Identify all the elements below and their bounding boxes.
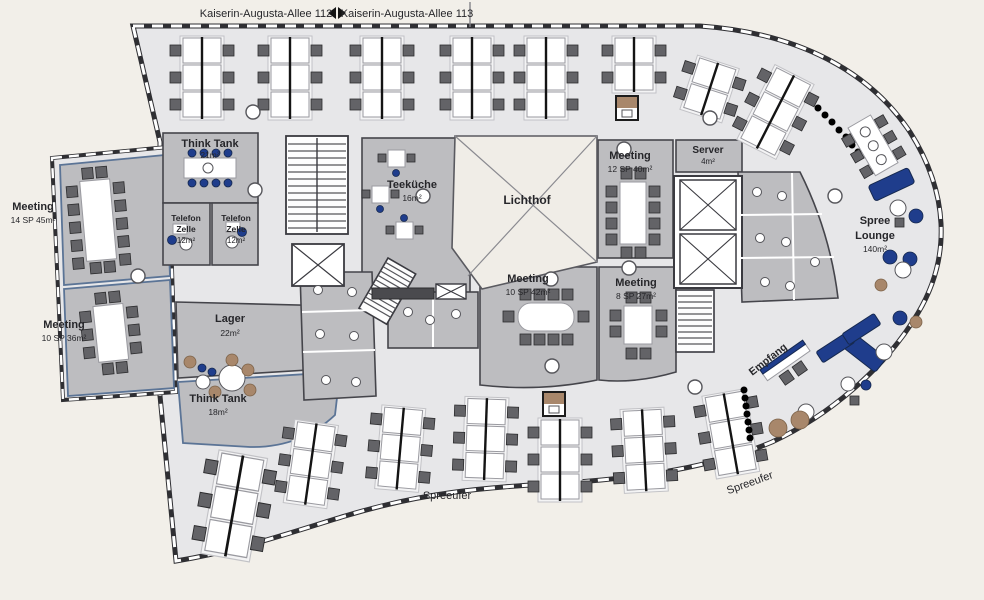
lounge-pouf-4 bbox=[791, 411, 809, 429]
label-meeting-left-bottom: Meeting bbox=[43, 319, 85, 331]
street-label-kaiserin-113: Kaiserin-Augusta-Allee 113 bbox=[341, 8, 473, 20]
label-meeting-center-left: Meeting bbox=[507, 273, 549, 285]
lounge-armchair-1 bbox=[909, 209, 923, 223]
label-telefon-right-area: 12m² bbox=[227, 236, 246, 245]
label-lichthof: Lichthof bbox=[503, 193, 551, 207]
label-meeting-center-top: Meeting bbox=[609, 150, 651, 162]
street-label-spreeufer-center: Spreeufer bbox=[423, 490, 472, 502]
lounge-table-1 bbox=[890, 200, 906, 216]
elevator-center bbox=[292, 244, 344, 286]
label-meeting-center-right-area: 8 SP 27m² bbox=[616, 291, 656, 301]
label-telefon-right-2: Zelle bbox=[226, 224, 246, 234]
label-telefon-left-area: 12m² bbox=[177, 236, 196, 245]
label-meeting-left-top: Meeting bbox=[12, 201, 54, 213]
elevator-right-shaft bbox=[674, 176, 742, 288]
label-teekueche: Teeküche bbox=[387, 179, 437, 191]
label-spree-lounge-area: 140m² bbox=[863, 244, 887, 254]
lounge-pouf-2 bbox=[910, 316, 922, 328]
room-wc-center bbox=[300, 272, 376, 400]
lounge-pouf-1 bbox=[875, 279, 887, 291]
stairwell-right bbox=[676, 290, 714, 352]
lounge-table-3 bbox=[876, 344, 892, 360]
floor-plan: Kaiserin-Augusta-Allee 112 Kaiserin-Augu… bbox=[0, 0, 984, 600]
label-meeting-center-right: Meeting bbox=[615, 277, 657, 289]
label-server: Server bbox=[692, 145, 723, 156]
label-telefon-left-1: Telefon bbox=[171, 213, 201, 223]
label-lager-area: 22m² bbox=[220, 328, 240, 338]
lichthof-court bbox=[452, 136, 597, 289]
label-spree-lounge-2: Lounge bbox=[855, 230, 895, 242]
label-meeting-left-top-area: 14 SP 45m² bbox=[11, 215, 56, 225]
lounge-armchair-4 bbox=[893, 311, 907, 325]
stairwell-top-center bbox=[286, 136, 348, 234]
label-telefon-left-2: Zelle bbox=[176, 224, 196, 234]
label-think-tank-top-area: 21m² bbox=[200, 150, 220, 160]
lounge-table-4 bbox=[841, 377, 855, 391]
lounge-chair-2 bbox=[850, 396, 859, 405]
label-think-tank-bottom: Think Tank bbox=[189, 393, 247, 405]
label-meeting-left-bottom-area: 10 SP 36m² bbox=[42, 333, 87, 343]
label-think-tank-top: Think Tank bbox=[181, 138, 239, 150]
floor-plan-drawing: Kaiserin-Augusta-Allee 112 Kaiserin-Augu… bbox=[0, 0, 984, 600]
label-think-tank-bottom-area: 18m² bbox=[208, 407, 228, 417]
label-meeting-center-left-area: 10 SP 42m² bbox=[506, 287, 551, 297]
label-meeting-center-top-area: 12 SP 40m² bbox=[608, 164, 653, 174]
lounge-armchair-5 bbox=[861, 380, 871, 390]
label-server-area: 4m² bbox=[701, 157, 715, 166]
lounge-table-2 bbox=[895, 262, 911, 278]
lounge-pouf-3 bbox=[769, 419, 787, 437]
lounge-chair-1 bbox=[895, 218, 904, 227]
label-spree-lounge-1: Spree bbox=[860, 215, 891, 227]
street-label-kaiserin-112: Kaiserin-Augusta-Allee 112 bbox=[200, 8, 332, 20]
label-teekueche-area: 16m² bbox=[402, 193, 422, 203]
label-lager: Lager bbox=[215, 313, 246, 325]
kitchen-shaft bbox=[436, 284, 466, 299]
label-telefon-right-1: Telefon bbox=[221, 213, 251, 223]
